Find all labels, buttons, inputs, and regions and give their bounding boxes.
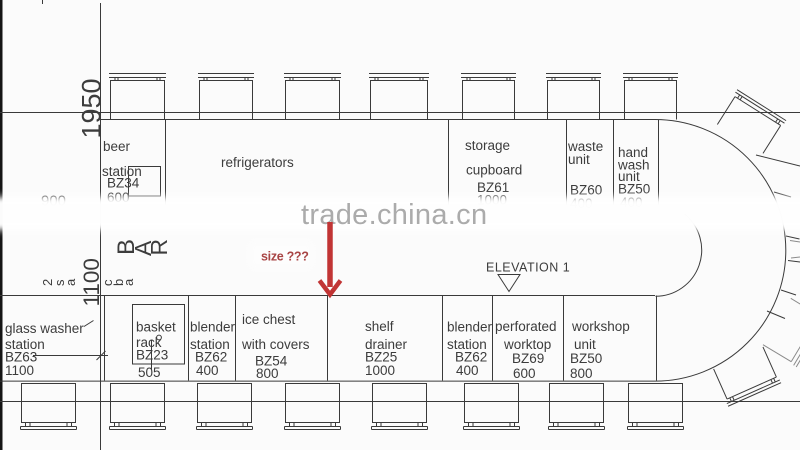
svg-text:800: 800: [570, 366, 593, 381]
svg-text:basket: basket: [136, 320, 176, 335]
svg-text:ELEVATION 1: ELEVATION 1: [486, 261, 570, 275]
svg-text:1100: 1100: [5, 363, 34, 378]
svg-text:blender: blender: [190, 320, 236, 335]
svg-text:600: 600: [513, 366, 536, 381]
svg-text:400: 400: [196, 363, 219, 378]
svg-text:BZ34: BZ34: [107, 176, 140, 191]
svg-text:ice chest: ice chest: [242, 312, 296, 327]
svg-text:perforated: perforated: [495, 319, 557, 334]
svg-text:800: 800: [256, 366, 279, 381]
svg-text:1950: 1950: [77, 78, 107, 138]
svg-text:glass washer: glass washer: [5, 321, 84, 336]
svg-text:worktop: worktop: [503, 337, 551, 352]
svg-text:1000: 1000: [365, 363, 395, 378]
svg-text:size ???: size ???: [261, 250, 309, 264]
svg-text:a: a: [121, 278, 136, 286]
svg-text:with covers: with covers: [241, 337, 310, 352]
svg-text:R: R: [146, 239, 172, 256]
svg-text:refrigerators: refrigerators: [221, 155, 294, 170]
svg-text:beer: beer: [103, 139, 131, 154]
svg-text:shelf: shelf: [365, 319, 394, 334]
svg-text:blender: blender: [447, 320, 493, 335]
svg-text:400: 400: [456, 363, 479, 378]
svg-text:storage: storage: [465, 138, 510, 153]
svg-text:a: a: [63, 278, 78, 286]
svg-text:unit: unit: [568, 152, 590, 167]
svg-text:BZ23: BZ23: [136, 348, 168, 363]
svg-text:workshop: workshop: [571, 319, 630, 334]
svg-text:BZ50: BZ50: [570, 351, 602, 366]
svg-text:BZ69: BZ69: [512, 351, 544, 366]
svg-text:cupboard: cupboard: [466, 163, 522, 178]
svg-text:505: 505: [138, 365, 161, 380]
svg-text:unit: unit: [574, 337, 596, 352]
